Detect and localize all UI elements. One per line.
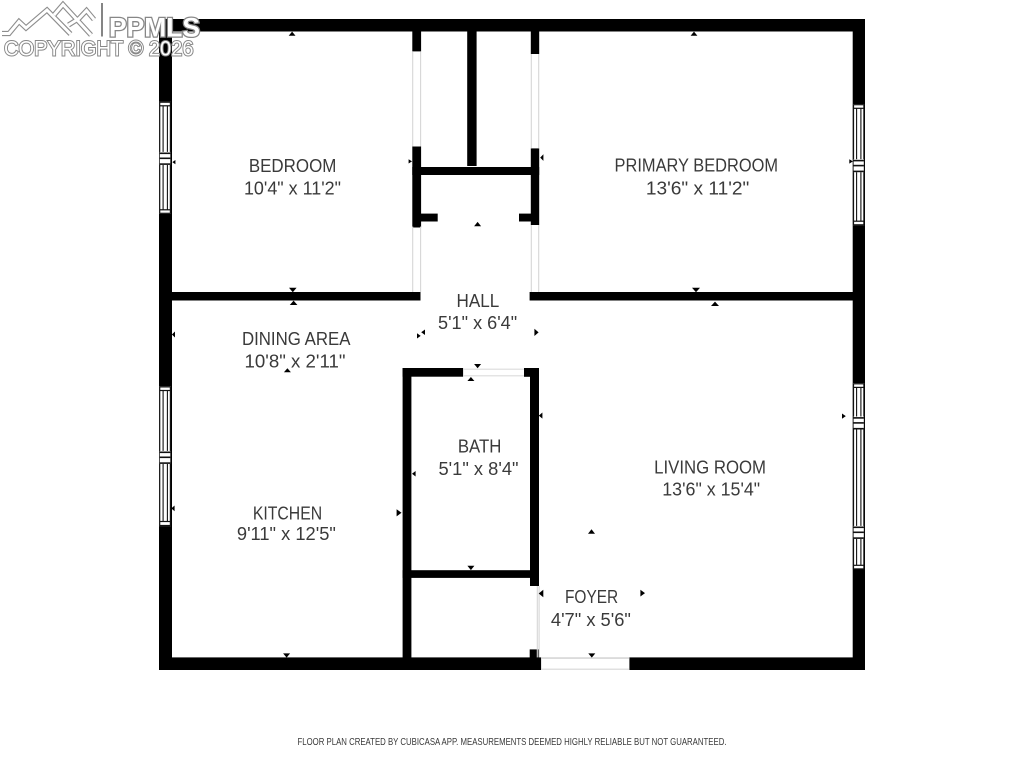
svg-text:10'8" x 2'11": 10'8" x 2'11" — [245, 351, 346, 372]
svg-text:COPYRIGHT © 2026: COPYRIGHT © 2026 — [4, 37, 194, 60]
svg-text:9'11" x 12'5": 9'11" x 12'5" — [237, 523, 336, 544]
svg-text:10'4" x 11'2": 10'4" x 11'2" — [244, 178, 341, 199]
svg-text:13'6" x 15'4": 13'6" x 15'4" — [662, 478, 760, 499]
svg-text:FLOOR PLAN CREATED BY CUBICASA: FLOOR PLAN CREATED BY CUBICASA APP. MEAS… — [298, 736, 727, 748]
svg-text:5'1" x 6'4": 5'1" x 6'4" — [438, 312, 517, 333]
svg-text:FOYER: FOYER — [565, 586, 618, 607]
svg-text:DINING AREA: DINING AREA — [242, 328, 351, 349]
svg-text:KITCHEN: KITCHEN — [253, 503, 322, 524]
svg-text:PRIMARY BEDROOM: PRIMARY BEDROOM — [615, 155, 779, 176]
svg-text:13'6" x 11'2": 13'6" x 11'2" — [646, 177, 750, 198]
svg-text:BATH: BATH — [458, 435, 502, 456]
svg-text:BEDROOM: BEDROOM — [249, 155, 337, 176]
svg-text:LIVING ROOM: LIVING ROOM — [654, 457, 766, 478]
svg-text:5'1" x 8'4": 5'1" x 8'4" — [439, 458, 519, 479]
svg-text:4'7" x 5'6": 4'7" x 5'6" — [551, 609, 631, 630]
svg-text:HALL: HALL — [457, 290, 500, 311]
